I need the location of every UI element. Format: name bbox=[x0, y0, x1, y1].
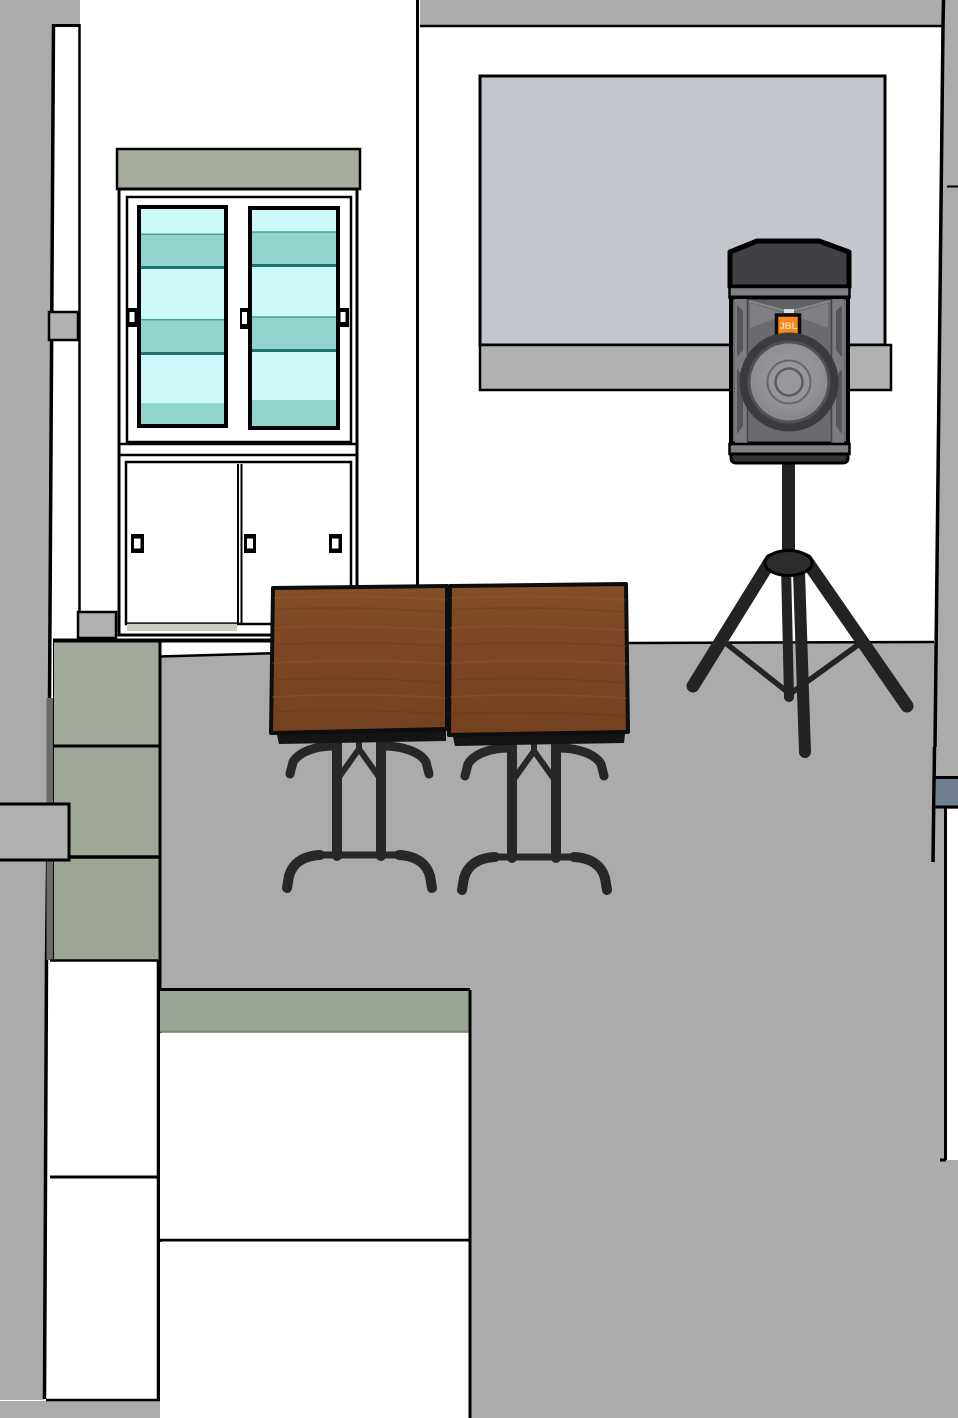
svg-text:JBL: JBL bbox=[780, 321, 798, 332]
